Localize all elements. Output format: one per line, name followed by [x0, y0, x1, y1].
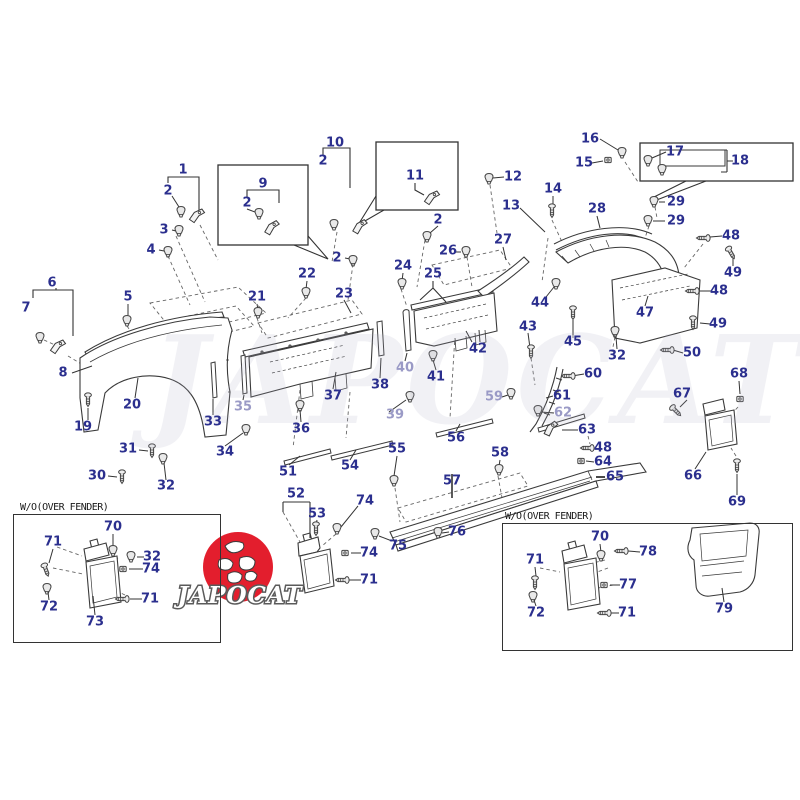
part-18-bracket-drawing [660, 150, 725, 166]
front-fender-drawing [80, 312, 232, 437]
rear-fender-flare-drawing [554, 228, 700, 343]
rear-door-moulding-drawing [411, 257, 529, 351]
wo-over-fender-title-right: W/O(OVER FENDER) [505, 511, 593, 522]
strip-54 [331, 441, 393, 460]
rear-flare-lower-panel-47 [612, 268, 700, 343]
small-moulding-strips [284, 414, 585, 465]
strip-51 [284, 449, 331, 465]
strip-56 [436, 419, 493, 437]
wo-over-fender-box-left [13, 514, 221, 643]
callout-box-9 [218, 165, 328, 259]
callout-box-11 [358, 142, 458, 225]
front-door-moulding-drawing [243, 323, 373, 399]
mudflap-center-drawing [298, 533, 334, 593]
mudguard-66-drawing [703, 399, 737, 450]
diagram-line-art: JAPOCAT [0, 0, 800, 800]
quarter-moulding-27 [478, 257, 529, 297]
wo-over-fender-title-left: W/O(OVER FENDER) [20, 502, 108, 513]
wo-over-fender-box-right [502, 523, 793, 651]
parts-diagram-page: JAPOCAT JAPOCAT W/O(OVER FENDER) W/O(OVE… [0, 0, 800, 800]
